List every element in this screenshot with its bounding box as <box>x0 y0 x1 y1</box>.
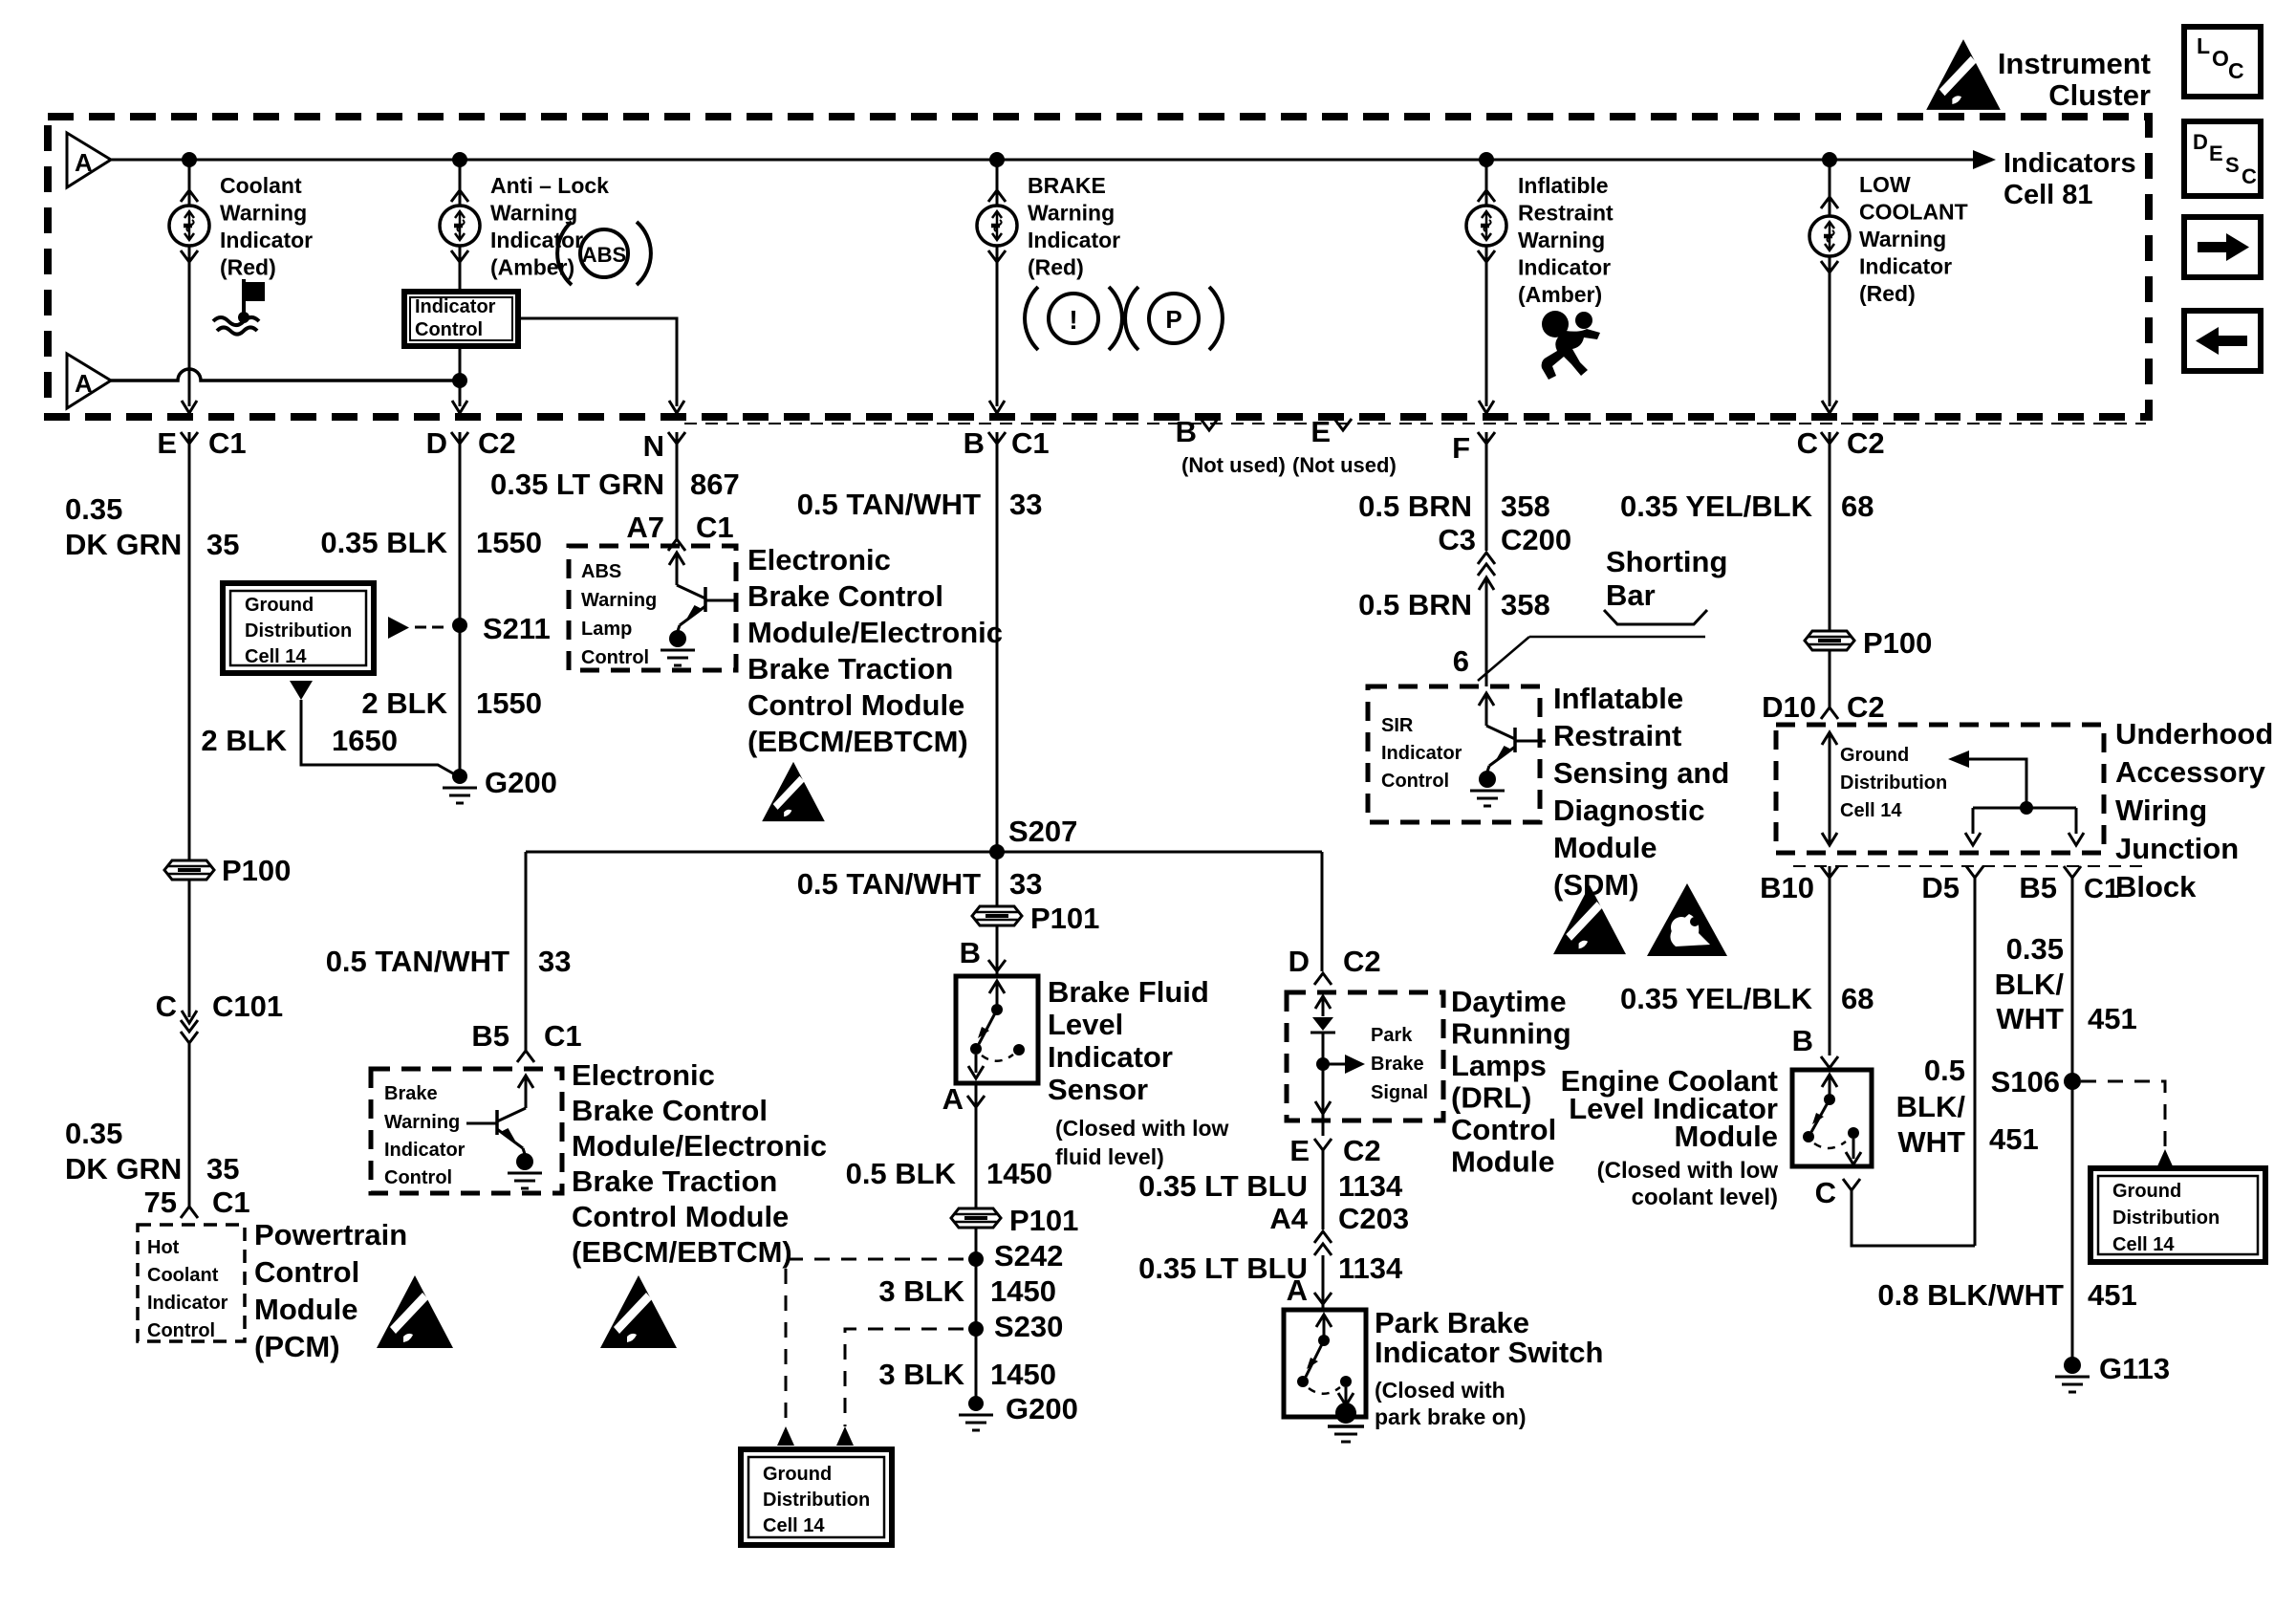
svg-text:D: D <box>1289 945 1310 978</box>
svg-text:2 BLK: 2 BLK <box>201 724 287 757</box>
svg-text:Distribution: Distribution <box>2112 1207 2220 1229</box>
svg-text:Indicator: Indicator <box>1518 255 1611 280</box>
svg-text:451: 451 <box>1989 1122 2039 1156</box>
svg-text:P100: P100 <box>222 854 291 887</box>
svg-text:Inflatable: Inflatable <box>1553 682 1683 715</box>
svg-text:D: D <box>426 426 447 460</box>
svg-text:A: A <box>75 148 93 177</box>
svg-text:S230: S230 <box>994 1310 1063 1343</box>
svg-text:Ground: Ground <box>245 595 314 616</box>
svg-text:Warning: Warning <box>1028 201 1115 226</box>
svg-text:C2: C2 <box>1343 945 1381 978</box>
svg-text:F: F <box>1452 431 1470 465</box>
svg-text:Brake Fluid: Brake Fluid <box>1048 975 1209 1009</box>
svg-text:Module: Module <box>1553 831 1657 864</box>
svg-text:Cell 81: Cell 81 <box>2004 180 2093 210</box>
svg-text:fluid level): fluid level) <box>1055 1144 1164 1169</box>
svg-text:SIR: SIR <box>1381 715 1414 736</box>
svg-text:coolant level): coolant level) <box>1632 1185 1778 1210</box>
svg-text:1450: 1450 <box>990 1358 1056 1391</box>
svg-text:Indicator: Indicator <box>1048 1040 1173 1074</box>
svg-text:D5: D5 <box>1921 871 1960 904</box>
svg-text:0.5 TAN/WHT: 0.5 TAN/WHT <box>797 867 981 901</box>
svg-text:C3: C3 <box>1438 523 1476 556</box>
svg-text:0.35: 0.35 <box>2006 932 2064 966</box>
svg-text:(Closed with low: (Closed with low <box>1055 1116 1229 1141</box>
svg-text:1650: 1650 <box>332 724 398 757</box>
svg-text:LOW: LOW <box>1859 172 1911 197</box>
svg-text:2 BLK: 2 BLK <box>361 686 447 720</box>
svg-text:1134: 1134 <box>1338 1251 1403 1285</box>
svg-text:358: 358 <box>1501 588 1550 621</box>
svg-text:S242: S242 <box>994 1239 1063 1273</box>
svg-text:Brake Traction: Brake Traction <box>572 1164 777 1198</box>
svg-text:Anti – Lock: Anti – Lock <box>490 173 609 198</box>
svg-text:0.35 LT GRN: 0.35 LT GRN <box>490 468 664 501</box>
svg-text:Control Module: Control Module <box>747 688 964 722</box>
svg-text:Indicator: Indicator <box>1381 743 1462 764</box>
svg-text:C200: C200 <box>1501 523 1571 556</box>
svg-text:C: C <box>2242 164 2257 188</box>
svg-text:DK GRN: DK GRN <box>65 1152 182 1186</box>
svg-text:Warning: Warning <box>384 1112 460 1133</box>
svg-text:Indicator: Indicator <box>147 1293 228 1314</box>
svg-text:(Red): (Red) <box>220 255 276 280</box>
svg-text:Underhood: Underhood <box>2115 717 2273 751</box>
svg-text:S: S <box>2225 153 2240 177</box>
svg-text:(DRL): (DRL) <box>1451 1081 1531 1115</box>
svg-text:Block: Block <box>2115 870 2197 903</box>
svg-text:Daytime: Daytime <box>1451 985 1567 1018</box>
svg-text:P101: P101 <box>1009 1204 1078 1237</box>
svg-text:C203: C203 <box>1338 1202 1409 1235</box>
svg-text:B5: B5 <box>2019 871 2057 904</box>
svg-text:(EBCM/EBTCM): (EBCM/EBTCM) <box>747 725 968 758</box>
svg-text:(Not used): (Not used) <box>1181 453 1286 477</box>
svg-text:Powertrain: Powertrain <box>254 1218 407 1251</box>
svg-text:Coolant: Coolant <box>220 173 302 198</box>
svg-text:Ground: Ground <box>763 1464 832 1485</box>
svg-text:C1: C1 <box>544 1019 582 1053</box>
svg-text:Diagnostic: Diagnostic <box>1553 794 1704 827</box>
svg-text:Lamps: Lamps <box>1451 1049 1547 1082</box>
svg-text:B5: B5 <box>471 1019 509 1053</box>
svg-text:Electronic: Electronic <box>572 1058 715 1092</box>
svg-text:Cell 14: Cell 14 <box>763 1515 825 1536</box>
svg-text:C: C <box>2228 58 2244 83</box>
svg-text:C: C <box>156 990 177 1023</box>
svg-text:(Red): (Red) <box>1859 281 1916 306</box>
svg-text:68: 68 <box>1841 982 1874 1015</box>
svg-text:A: A <box>75 369 93 398</box>
svg-text:0.35 LT BLU: 0.35 LT BLU <box>1138 1169 1308 1203</box>
svg-text:35: 35 <box>206 1152 239 1186</box>
svg-text:Electronic: Electronic <box>747 543 891 577</box>
svg-text:Brake: Brake <box>1371 1054 1424 1075</box>
svg-text:Lamp: Lamp <box>581 619 632 640</box>
svg-text:3 BLK: 3 BLK <box>878 1274 964 1308</box>
svg-text:Sensor: Sensor <box>1048 1073 1148 1106</box>
svg-text:Control: Control <box>415 319 483 340</box>
svg-text:Control: Control <box>581 647 649 668</box>
svg-text:Control: Control <box>1381 771 1449 792</box>
svg-text:Indicator: Indicator <box>1028 228 1120 252</box>
svg-text:Indicator: Indicator <box>220 228 313 252</box>
svg-text:N: N <box>643 429 664 463</box>
svg-text:Indicator: Indicator <box>384 1140 466 1161</box>
svg-text:1550: 1550 <box>476 686 542 720</box>
svg-text:C1: C1 <box>2084 874 2119 904</box>
svg-text:68: 68 <box>1841 490 1874 523</box>
svg-text:3 BLK: 3 BLK <box>878 1358 964 1391</box>
svg-text:Control: Control <box>147 1320 215 1341</box>
svg-text:Coolant: Coolant <box>147 1265 219 1286</box>
svg-text:0.35 LT BLU: 0.35 LT BLU <box>1138 1251 1308 1285</box>
svg-text:(PCM): (PCM) <box>254 1330 340 1363</box>
svg-text:Indicator: Indicator <box>415 296 496 317</box>
svg-text:C2: C2 <box>1847 426 1885 460</box>
svg-text:G113: G113 <box>2099 1352 2170 1385</box>
svg-text:Cell 14: Cell 14 <box>245 646 307 667</box>
svg-text:(EBCM/EBTCM): (EBCM/EBTCM) <box>572 1235 792 1269</box>
svg-text:Brake Control: Brake Control <box>747 579 943 613</box>
svg-text:G200: G200 <box>485 766 557 799</box>
svg-text:Distribution: Distribution <box>1840 772 1947 794</box>
svg-text:Module: Module <box>1675 1120 1779 1153</box>
svg-text:6: 6 <box>1453 644 1469 678</box>
svg-text:358: 358 <box>1501 490 1550 523</box>
svg-text:1134: 1134 <box>1338 1169 1403 1203</box>
svg-text:C1: C1 <box>696 511 734 544</box>
svg-text:E: E <box>2209 141 2223 165</box>
svg-text:0.5 BRN: 0.5 BRN <box>1358 588 1472 621</box>
svg-text:G200: G200 <box>1006 1392 1078 1425</box>
svg-text:B10: B10 <box>1760 871 1814 904</box>
svg-text:E: E <box>1310 415 1331 448</box>
svg-text:B: B <box>1176 415 1197 448</box>
svg-text:1450: 1450 <box>986 1157 1052 1190</box>
svg-text:33: 33 <box>538 945 571 978</box>
svg-text:P101: P101 <box>1030 902 1099 935</box>
svg-text:(Not used): (Not used) <box>1292 453 1397 477</box>
svg-text:B: B <box>1792 1024 1813 1057</box>
svg-text:Wiring: Wiring <box>2115 794 2207 827</box>
svg-text:Junction: Junction <box>2115 832 2239 865</box>
svg-text:DK GRN: DK GRN <box>65 528 182 561</box>
svg-text:A: A <box>1287 1273 1308 1307</box>
svg-text:0.5 TAN/WHT: 0.5 TAN/WHT <box>326 945 509 978</box>
svg-text:Cluster: Cluster <box>2048 78 2151 112</box>
svg-text:33: 33 <box>1009 867 1042 901</box>
svg-text:Running: Running <box>1451 1017 1571 1051</box>
svg-text:(SDM): (SDM) <box>1553 868 1639 902</box>
svg-text:C101: C101 <box>212 990 283 1023</box>
svg-text:Ground: Ground <box>2112 1181 2181 1202</box>
svg-text:0.35 YEL/BLK: 0.35 YEL/BLK <box>1620 982 1813 1015</box>
svg-text:451: 451 <box>2088 1002 2137 1035</box>
svg-text:D: D <box>2193 130 2208 154</box>
svg-text:Indicator: Indicator <box>490 228 583 252</box>
svg-text:Brake: Brake <box>384 1083 438 1104</box>
svg-text:C1: C1 <box>212 1186 250 1219</box>
svg-text:B: B <box>964 426 985 460</box>
svg-text:0.5 BRN: 0.5 BRN <box>1358 490 1472 523</box>
svg-text:C: C <box>1797 426 1818 460</box>
svg-text:1550: 1550 <box>476 526 542 559</box>
svg-text:Module/Electronic: Module/Electronic <box>572 1129 827 1163</box>
svg-text:Brake Traction: Brake Traction <box>747 652 953 685</box>
svg-text:S211: S211 <box>483 612 551 645</box>
svg-text:Brake Control: Brake Control <box>572 1094 768 1127</box>
svg-text:B: B <box>960 936 981 969</box>
svg-text:BLK/: BLK/ <box>1995 968 2065 1001</box>
svg-text:1450: 1450 <box>990 1274 1056 1308</box>
svg-text:E: E <box>1289 1134 1310 1167</box>
svg-text:park brake on): park brake on) <box>1375 1404 1527 1429</box>
svg-text:Indicators: Indicators <box>2004 148 2136 179</box>
svg-text:451: 451 <box>2088 1278 2137 1312</box>
svg-text:A: A <box>942 1082 964 1116</box>
svg-text:33: 33 <box>1009 488 1042 521</box>
svg-text:(Closed with: (Closed with <box>1375 1378 1505 1403</box>
svg-text:0.8 BLK/WHT: 0.8 BLK/WHT <box>1877 1278 2064 1312</box>
svg-text:Indicator Switch: Indicator Switch <box>1375 1336 1603 1369</box>
svg-text:(Amber): (Amber) <box>1518 282 1602 307</box>
svg-text:P100: P100 <box>1863 626 1932 660</box>
svg-text:Module: Module <box>1451 1145 1555 1179</box>
svg-text:Shorting: Shorting <box>1606 545 1727 578</box>
svg-text:C2: C2 <box>478 426 516 460</box>
svg-text:BRAKE: BRAKE <box>1028 173 1106 198</box>
svg-text:ABS: ABS <box>582 243 626 267</box>
svg-text:WHT: WHT <box>1897 1125 1965 1159</box>
svg-text:A4: A4 <box>1269 1202 1308 1235</box>
svg-text:(Red): (Red) <box>1028 255 1084 280</box>
svg-text:0.5: 0.5 <box>1924 1054 1965 1087</box>
svg-text:C: C <box>1815 1176 1836 1209</box>
svg-text:0.5 BLK: 0.5 BLK <box>846 1157 957 1190</box>
svg-text:Cell 14: Cell 14 <box>1840 800 1902 821</box>
svg-text:Park: Park <box>1371 1025 1413 1046</box>
svg-text:0.35 BLK: 0.35 BLK <box>320 526 447 559</box>
svg-text:D10: D10 <box>1762 690 1816 724</box>
svg-text:0.35: 0.35 <box>65 1117 122 1150</box>
svg-text:C1: C1 <box>208 426 247 460</box>
svg-text:0.35: 0.35 <box>65 492 122 526</box>
svg-text:Warning: Warning <box>490 201 577 226</box>
svg-text:Control: Control <box>254 1255 359 1289</box>
svg-text:Park Brake: Park Brake <box>1375 1306 1529 1339</box>
svg-text:C2: C2 <box>1343 1134 1381 1167</box>
svg-text:Hot: Hot <box>147 1237 180 1258</box>
svg-text:(Closed with low: (Closed with low <box>1597 1158 1779 1184</box>
svg-text:E: E <box>157 426 177 460</box>
svg-text:!: ! <box>1069 305 1077 335</box>
svg-text:Restraint: Restraint <box>1518 201 1614 226</box>
svg-text:Restraint: Restraint <box>1553 719 1681 752</box>
svg-text:Control Module: Control Module <box>572 1200 789 1233</box>
svg-text:S207: S207 <box>1008 815 1077 848</box>
svg-text:35: 35 <box>206 528 239 561</box>
svg-text:BLK/: BLK/ <box>1896 1090 1966 1123</box>
svg-text:COOLANT: COOLANT <box>1859 200 1968 225</box>
svg-text:867: 867 <box>690 468 740 501</box>
svg-text:Sensing and: Sensing and <box>1553 756 1729 790</box>
svg-text:C1: C1 <box>1011 426 1050 460</box>
svg-text:Distribution: Distribution <box>245 620 352 642</box>
svg-text:Cell 14: Cell 14 <box>2112 1234 2175 1255</box>
svg-text:0.5 TAN/WHT: 0.5 TAN/WHT <box>797 488 981 521</box>
svg-text:Warning: Warning <box>1859 227 1946 251</box>
svg-text:S106: S106 <box>1991 1065 2060 1099</box>
svg-text:ABS: ABS <box>581 561 621 582</box>
svg-text:A7: A7 <box>626 511 664 544</box>
svg-text:Module/Electronic: Module/Electronic <box>747 616 1003 649</box>
svg-text:C2: C2 <box>1847 690 1885 724</box>
svg-text:Warning: Warning <box>1518 228 1605 252</box>
svg-text:Accessory: Accessory <box>2115 755 2266 789</box>
svg-text:L: L <box>2197 33 2210 58</box>
svg-text:Inflatible: Inflatible <box>1518 173 1609 198</box>
svg-text:75: 75 <box>144 1186 177 1219</box>
svg-text:Ground: Ground <box>1840 745 1909 766</box>
svg-text:Control: Control <box>384 1167 452 1188</box>
svg-text:Distribution: Distribution <box>763 1490 870 1511</box>
svg-text:Control: Control <box>1451 1113 1556 1146</box>
svg-text:O: O <box>2212 46 2229 71</box>
svg-text:Level: Level <box>1048 1008 1123 1041</box>
svg-text:Bar: Bar <box>1606 578 1656 612</box>
svg-text:P: P <box>1165 305 1181 334</box>
svg-text:Warning: Warning <box>220 201 307 226</box>
svg-text:0.35 YEL/BLK: 0.35 YEL/BLK <box>1620 490 1813 523</box>
svg-text:Signal: Signal <box>1371 1082 1428 1103</box>
svg-text:Indicator: Indicator <box>1859 254 1952 279</box>
svg-text:WHT: WHT <box>1996 1002 2064 1035</box>
svg-text:Module: Module <box>254 1293 358 1326</box>
svg-text:Warning: Warning <box>581 590 657 611</box>
svg-text:Instrument: Instrument <box>1998 47 2151 80</box>
